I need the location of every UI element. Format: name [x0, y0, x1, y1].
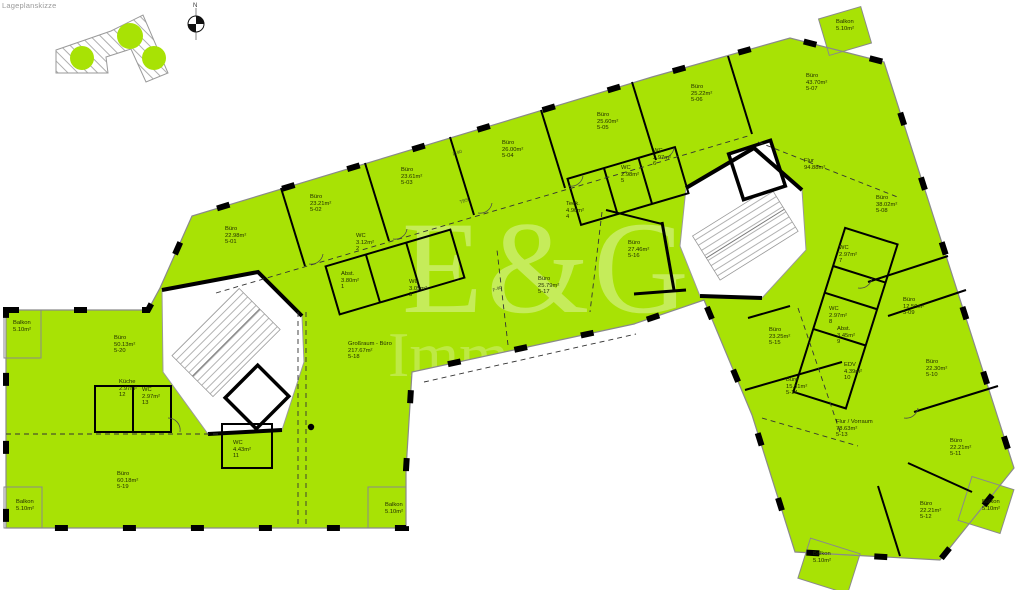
floorplan-drawing: N E&G Immo	[0, 0, 1024, 590]
site-sketch	[56, 15, 168, 82]
tree-icon	[142, 46, 166, 70]
watermark-subline: Immo	[388, 319, 541, 390]
floorplan-page: N E&G Immo	[0, 0, 1024, 590]
column-dot	[308, 424, 314, 430]
page-title: Lageplanskizze	[2, 1, 57, 10]
tree-icon	[70, 46, 94, 70]
north-arrow-icon: N	[188, 3, 204, 40]
compass-n-label: N	[193, 3, 197, 9]
tree-icon	[117, 23, 143, 49]
